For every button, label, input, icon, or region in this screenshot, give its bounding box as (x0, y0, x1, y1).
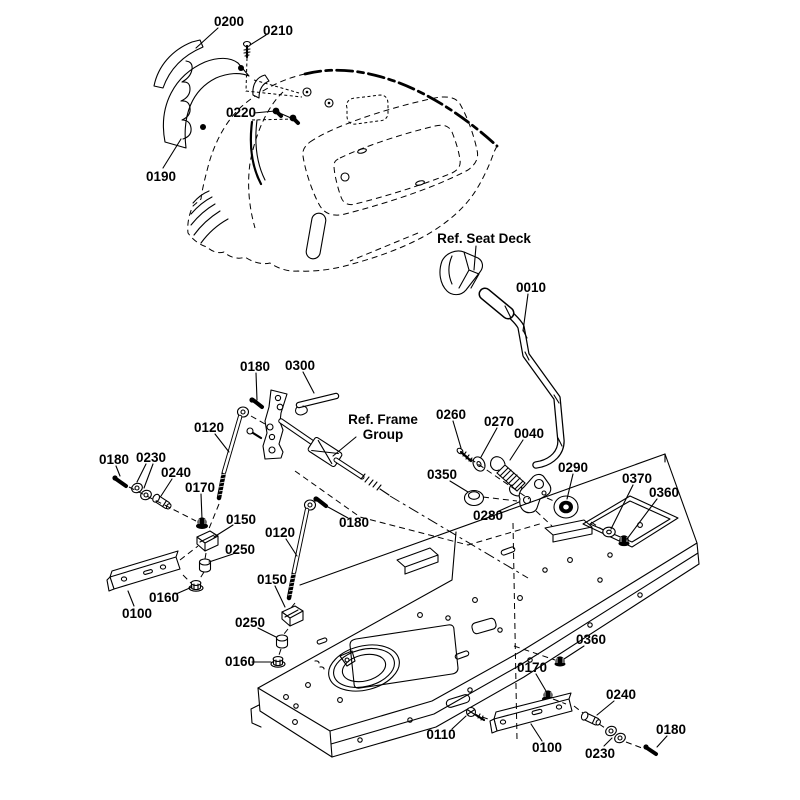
callout-0040: 0040 (514, 426, 544, 441)
bracket-0280 (519, 474, 551, 512)
seat-deck-handle (440, 251, 483, 295)
trunnion-0150-left (197, 531, 218, 551)
callout-0010: 0010 (516, 280, 546, 295)
callout-0270: 0270 (484, 414, 514, 429)
callout-0230-left: 0230 (136, 450, 166, 465)
callout-0200: 0200 (214, 14, 244, 29)
grommet-0290 (554, 496, 578, 518)
screw-0210 (244, 42, 251, 58)
callout-0280: 0280 (473, 508, 503, 523)
parts-diagram-page: 0200 0210 0220 0190 Ref. Seat Deck 0010 … (0, 0, 800, 800)
callout-0290: 0290 (558, 460, 588, 475)
nut-0360-lower (555, 656, 566, 666)
callout-0120-right: 0120 (265, 525, 295, 540)
callout-0120-left: 0120 (194, 420, 224, 435)
callout-0250-right: 0250 (235, 615, 265, 630)
callout-0180-middle: 0180 (339, 515, 369, 530)
callout-0100-right: 0100 (532, 740, 562, 755)
washers-0230-right (604, 725, 627, 745)
nut-0160-right (271, 657, 285, 668)
ref-frame-group-label-line2: Group (363, 427, 404, 442)
screw-0180-lower-right (643, 744, 656, 754)
cap-nut-0350 (465, 491, 484, 506)
spacer-0250-left (200, 559, 211, 572)
bracket-0100-right (490, 693, 572, 733)
ref-frame-group-label-line1: Ref. Frame (348, 412, 418, 427)
spacer-0250-right (277, 635, 288, 648)
callout-0150-right: 0150 (257, 572, 287, 587)
callout-0190: 0190 (146, 169, 176, 184)
callout-0160-left: 0160 (149, 590, 179, 605)
callout-0100-left: 0100 (122, 606, 152, 621)
callout-labels: 0200 0210 0220 0190 Ref. Seat Deck 0010 … (99, 14, 686, 761)
callout-0360-lower: 0360 (576, 632, 606, 647)
ref-seat-deck-label: Ref. Seat Deck (437, 231, 531, 246)
callout-0250-left: 0250 (225, 542, 255, 557)
callout-0160-right: 0160 (225, 654, 255, 669)
bracket-0100-left (107, 551, 180, 591)
callout-0210: 0210 (263, 23, 293, 38)
screw-0180-left (112, 475, 126, 486)
callout-0150-left: 0150 (226, 512, 256, 527)
callout-0110: 0110 (426, 727, 455, 742)
callout-0220: 0220 (226, 105, 256, 120)
callout-0240-left: 0240 (161, 465, 191, 480)
callout-0370: 0370 (622, 471, 652, 486)
washer-0270 (471, 455, 488, 473)
callout-0180-left: 0180 (99, 452, 129, 467)
callout-0300: 0300 (285, 358, 315, 373)
callout-0180-upper: 0180 (240, 359, 270, 374)
callout-0240-right: 0240 (606, 687, 636, 702)
parts-diagram-canvas: 0200 0210 0220 0190 Ref. Seat Deck 0010 … (0, 0, 800, 800)
washers-0230-left (130, 482, 153, 502)
callout-0360-upper: 0360 (649, 485, 679, 500)
seat-pan-phantom-edge (305, 70, 497, 146)
fitting-0240-left (151, 493, 172, 511)
trunnion-0150-right (282, 606, 303, 626)
callout-0170-left: 0170 (185, 480, 215, 495)
serpentine-bracket-0190 (163, 58, 249, 148)
seat-pan-slot (305, 212, 327, 260)
nut-0160-left (189, 581, 203, 592)
callout-0260: 0260 (436, 407, 466, 422)
callout-0170-lower: 0170 (517, 660, 547, 675)
screw-0180-upper (249, 397, 262, 407)
washer-0370 (603, 527, 615, 537)
callout-0180-lower-right: 0180 (656, 722, 686, 737)
screw-0110 (467, 708, 485, 721)
rod-0300 (296, 396, 336, 415)
callout-0230-right: 0230 (585, 746, 615, 761)
callout-0350: 0350 (427, 467, 457, 482)
